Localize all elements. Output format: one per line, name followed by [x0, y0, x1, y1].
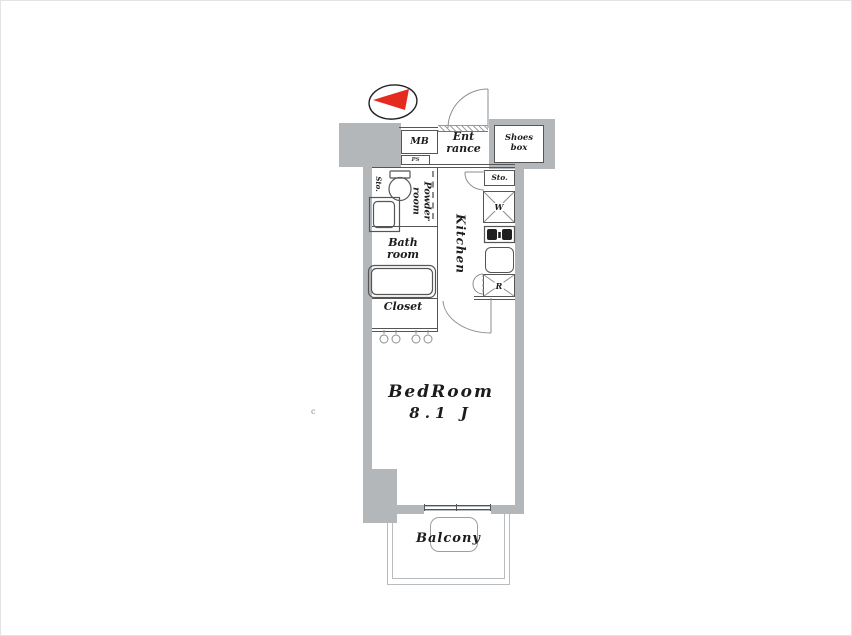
wall — [397, 505, 424, 514]
powder-room-label-line1: Powder — [421, 181, 432, 220]
storage-door-arc — [461, 169, 487, 193]
compass-icon — [365, 81, 421, 123]
entrance-label-line2: rance — [438, 143, 489, 155]
refrigerator-label: R — [495, 282, 504, 290]
balcony-label: Balcony — [387, 532, 510, 547]
window-tick — [456, 504, 457, 511]
storage-label: Sto. — [485, 171, 514, 185]
window-tick — [490, 504, 491, 511]
bathtub-icon — [368, 265, 437, 299]
bath-room-label-line2: room — [370, 249, 436, 261]
meter-box-label: MB — [402, 131, 437, 153]
powder-room-label-line2: room — [410, 181, 421, 220]
bedroom-label: BedRoom — [366, 383, 516, 402]
pipe-space-label: PS — [402, 156, 429, 165]
wall — [515, 169, 524, 506]
wall — [363, 469, 397, 523]
washbasin-icon — [369, 197, 401, 233]
powder-room-door — [432, 171, 434, 219]
shoes-box: Shoes box — [494, 125, 544, 163]
entrance-door-arc — [436, 81, 496, 131]
stove-icon — [484, 226, 516, 244]
wall — [491, 505, 524, 514]
washer-label: W — [494, 203, 505, 211]
entrance-step-line — [372, 167, 515, 168]
wall-line — [399, 127, 438, 128]
stray-mark: c — [311, 407, 315, 416]
window-line — [424, 505, 491, 506]
wall-line — [437, 167, 438, 331]
bedroom-size-label: 8.1 J — [366, 405, 516, 422]
kitchen-label: Kitchen — [453, 214, 466, 274]
bedroom-door-arc — [439, 294, 495, 336]
wall — [339, 123, 401, 167]
closet-hangers-icon — [375, 330, 437, 346]
closet-line — [372, 328, 438, 329]
window-line — [424, 509, 491, 510]
floor-plan: Balcony Shoes box MB PS Ent rance — [0, 0, 852, 636]
window-tick — [424, 504, 425, 511]
washer-space: W — [483, 191, 515, 223]
shelf-storage-label: Sto. — [374, 176, 382, 191]
shoes-box-label-line2: box — [505, 144, 533, 154]
kitchen-sink-icon — [485, 247, 514, 273]
closet-label: Closet — [370, 301, 436, 313]
